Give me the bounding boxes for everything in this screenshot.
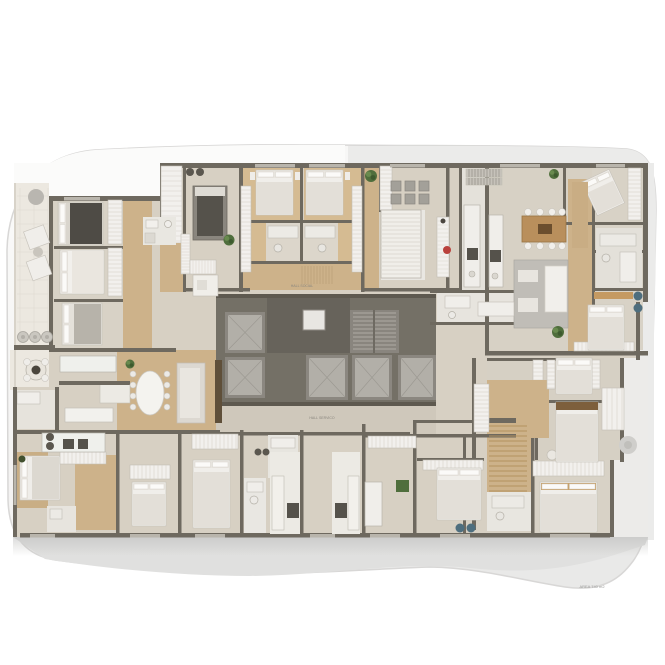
svg-text:AREA 740 m2: AREA 740 m2	[579, 584, 605, 589]
svg-text:HALL SOCIAL: HALL SOCIAL	[291, 284, 313, 288]
svg-text:HALL SERVICO: HALL SERVICO	[309, 416, 335, 420]
